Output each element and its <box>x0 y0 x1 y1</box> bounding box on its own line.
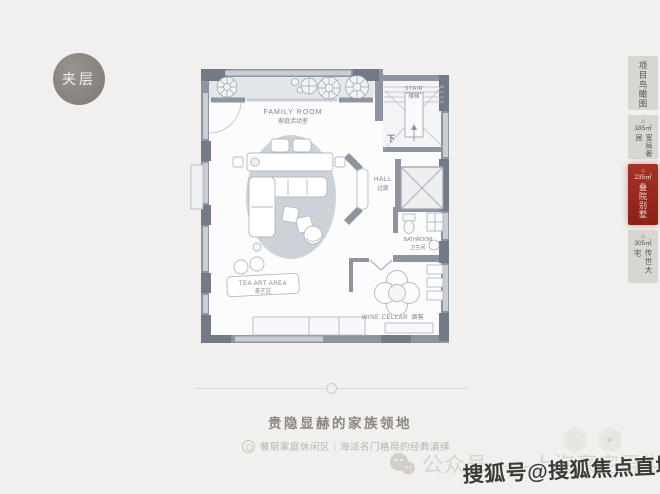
tab-area: 185㎡ <box>634 125 651 133</box>
sidebar-item-235-active[interactable]: ⌂ 235㎡ 叠院别墅 <box>628 164 658 225</box>
bathroom-label-zh: 卫生间 <box>410 244 425 251</box>
tab-label: 项目鸟瞰图 <box>637 61 649 109</box>
sidebar-item-aerial-view[interactable]: 项目鸟瞰图 <box>628 56 658 110</box>
tab-area: 235㎡ <box>634 174 651 182</box>
tab-label: 宽局奢居 <box>633 134 653 159</box>
page: 夹层 <box>0 0 660 494</box>
mezzanine-badge: 夹层 <box>53 53 105 105</box>
hall-label: HALL <box>374 176 392 183</box>
hall-label-zh: 过廊 <box>377 184 389 192</box>
family-room-label-zh: 家庭活动室 <box>278 117 308 125</box>
tab-label: 叠院别墅 <box>638 183 649 219</box>
tab-label: 传世大宅 <box>632 249 654 283</box>
section-heading: 贵隐显赫的家族领地 <box>190 412 490 432</box>
floor-plan: FAMILY ROOM 家庭活动室 STAIR 楼梯 下 HALL 过廊 BAT… <box>187 57 459 375</box>
bay-window-hall <box>357 169 368 209</box>
stair-label-zh: 楼梯 <box>408 92 420 100</box>
seal-icon <box>242 440 255 453</box>
tea-area-label-zh: 茶艺区 <box>255 287 272 295</box>
sidebar-item-185[interactable]: ⌂ 185㎡ 宽局奢居 <box>628 115 658 159</box>
divider-ring-icon <box>326 383 337 394</box>
tea-area-label: TEA ART AREA <box>239 281 287 287</box>
wechat-icon <box>388 452 416 476</box>
wine-cellar-label: WINE CELLAR酒窖 <box>362 313 424 321</box>
elevator-shaft <box>401 167 443 209</box>
stair-direction-label: 下 <box>387 134 395 143</box>
sidebar-item-305[interactable]: ⌂ 305㎡ 传世大宅 <box>628 230 658 283</box>
mezzanine-badge-label: 夹层 <box>62 69 96 89</box>
bay-window-left <box>191 165 203 209</box>
tab-area: 305㎡ <box>634 240 651 248</box>
stair-label: STAIR <box>405 86 423 92</box>
section-divider <box>195 388 467 389</box>
family-room-label: FAMILY ROOM <box>264 109 323 116</box>
bathroom-label: BATHROOM <box>404 237 433 243</box>
